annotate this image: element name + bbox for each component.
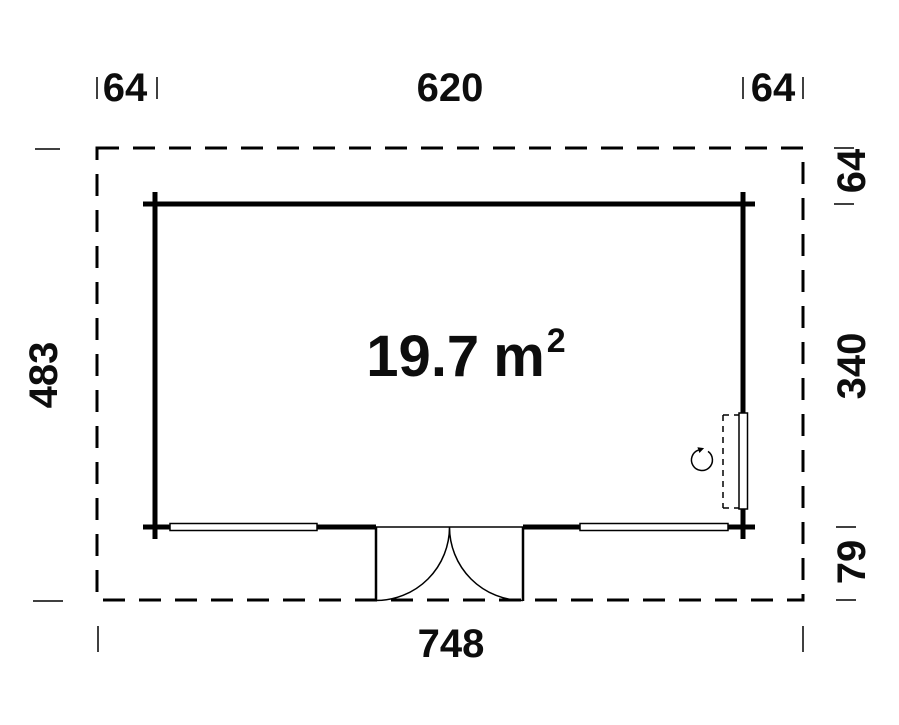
floor-plan-canvas: 64 620 64 483 64 340 79 748 19.7m2 — [0, 0, 899, 725]
dim-right-inner-depth: 340 — [832, 333, 872, 400]
door-swing-rotation-icon — [691, 447, 712, 470]
dim-bottom-total-width: 748 — [418, 624, 485, 664]
double-door-swing-arcs — [376, 527, 523, 601]
floor-area-unit: m — [493, 324, 545, 389]
floor-area-label: 19.7m2 — [366, 328, 565, 386]
side-door-leaf — [739, 413, 748, 509]
window-front-right — [580, 524, 728, 531]
dim-right-top-overhang: 64 — [832, 149, 872, 194]
dim-top-left-overhang: 64 — [103, 68, 148, 108]
dim-top-right-overhang: 64 — [751, 68, 796, 108]
dim-top-width: 620 — [417, 68, 484, 108]
side-door-dashed-opening — [723, 415, 739, 508]
floor-area-superscript: 2 — [547, 324, 566, 358]
floor-area-value: 19.7 — [366, 324, 479, 389]
dim-right-porch-depth: 79 — [832, 540, 872, 585]
window-front-left — [170, 524, 317, 531]
dim-left-total-depth: 483 — [24, 342, 64, 409]
